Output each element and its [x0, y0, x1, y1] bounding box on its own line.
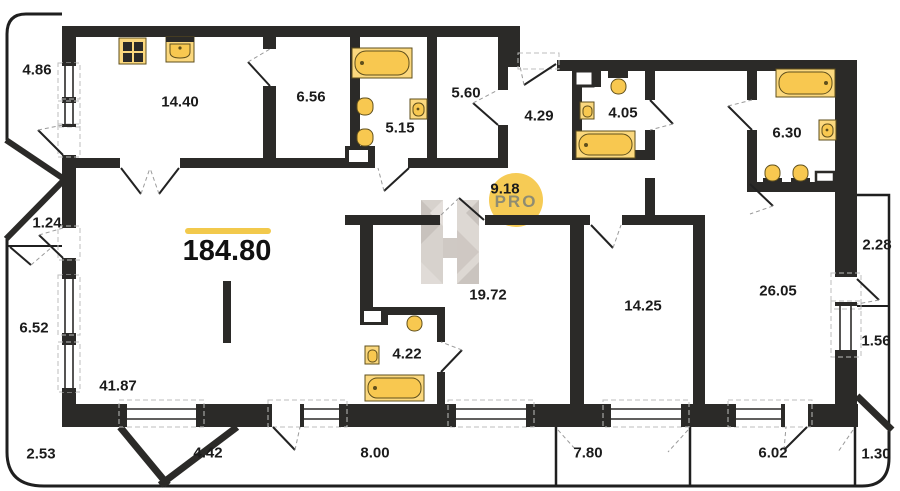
area-label-balcony-486: 4.86: [22, 62, 51, 79]
total-area-accent-line: [185, 228, 271, 234]
total-area-pointer-bar: [223, 281, 231, 343]
toilet-icon: [350, 128, 373, 146]
watermark-letter-h: [421, 200, 479, 284]
total-area-value: 184.80: [162, 235, 292, 268]
toilet-icon: [791, 165, 810, 186]
area-label-living-4187: 41.87: [99, 378, 137, 395]
area-label-room-560: 5.60: [451, 85, 480, 102]
area-label-hall-429: 4.29: [524, 108, 553, 125]
floor-plan-drawing: PRO: [0, 0, 900, 491]
area-label-balcony-124: 1.24: [32, 215, 61, 232]
area-label-room-656: 6.56: [296, 89, 325, 106]
area-label-balcony-253: 2.53: [26, 446, 55, 463]
area-label-room-1425: 14.25: [624, 298, 662, 315]
area-label-balcony-156: 1.56: [861, 333, 890, 350]
bathtub-icon: [576, 131, 635, 158]
area-label-kitchen: 14.40: [161, 94, 199, 111]
area-label-corridor-918: 9.18: [490, 181, 519, 198]
toilet-icon: [404, 307, 424, 331]
area-label-balcony-800: 8.00: [360, 445, 389, 462]
area-label-room-1972: 19.72: [469, 287, 507, 304]
toilet-icon: [763, 165, 782, 186]
sink-icon: [580, 102, 594, 119]
area-label-balcony-652: 6.52: [19, 320, 48, 337]
sink-icon: [365, 346, 379, 364]
area-label-balcony-442: 4.42: [193, 445, 222, 462]
bathtub-icon: [776, 69, 835, 97]
area-label-bath-515: 5.15: [385, 120, 414, 137]
area-label-balcony-228: 2.28: [862, 237, 891, 254]
sink-icon: [410, 99, 427, 119]
area-label-balcony-602: 6.02: [758, 445, 787, 462]
toilet-icon: [608, 71, 628, 94]
toilet-icon: [350, 97, 373, 115]
area-label-bath-405: 4.05: [608, 105, 637, 122]
floor-plan: PRO: [0, 0, 900, 491]
kitchen-sink-icon: [166, 37, 194, 62]
bathtub-icon: [365, 375, 424, 401]
bathtub-icon: [352, 48, 412, 78]
area-label-room-2605: 26.05: [759, 283, 797, 300]
area-label-balcony-130: 1.30: [861, 446, 890, 463]
sink-icon: [819, 120, 836, 140]
area-label-bath-422: 4.22: [392, 346, 421, 363]
area-label-bath-630: 6.30: [772, 125, 801, 142]
area-label-balcony-780: 7.80: [573, 445, 602, 462]
stove-icon: [119, 38, 146, 64]
